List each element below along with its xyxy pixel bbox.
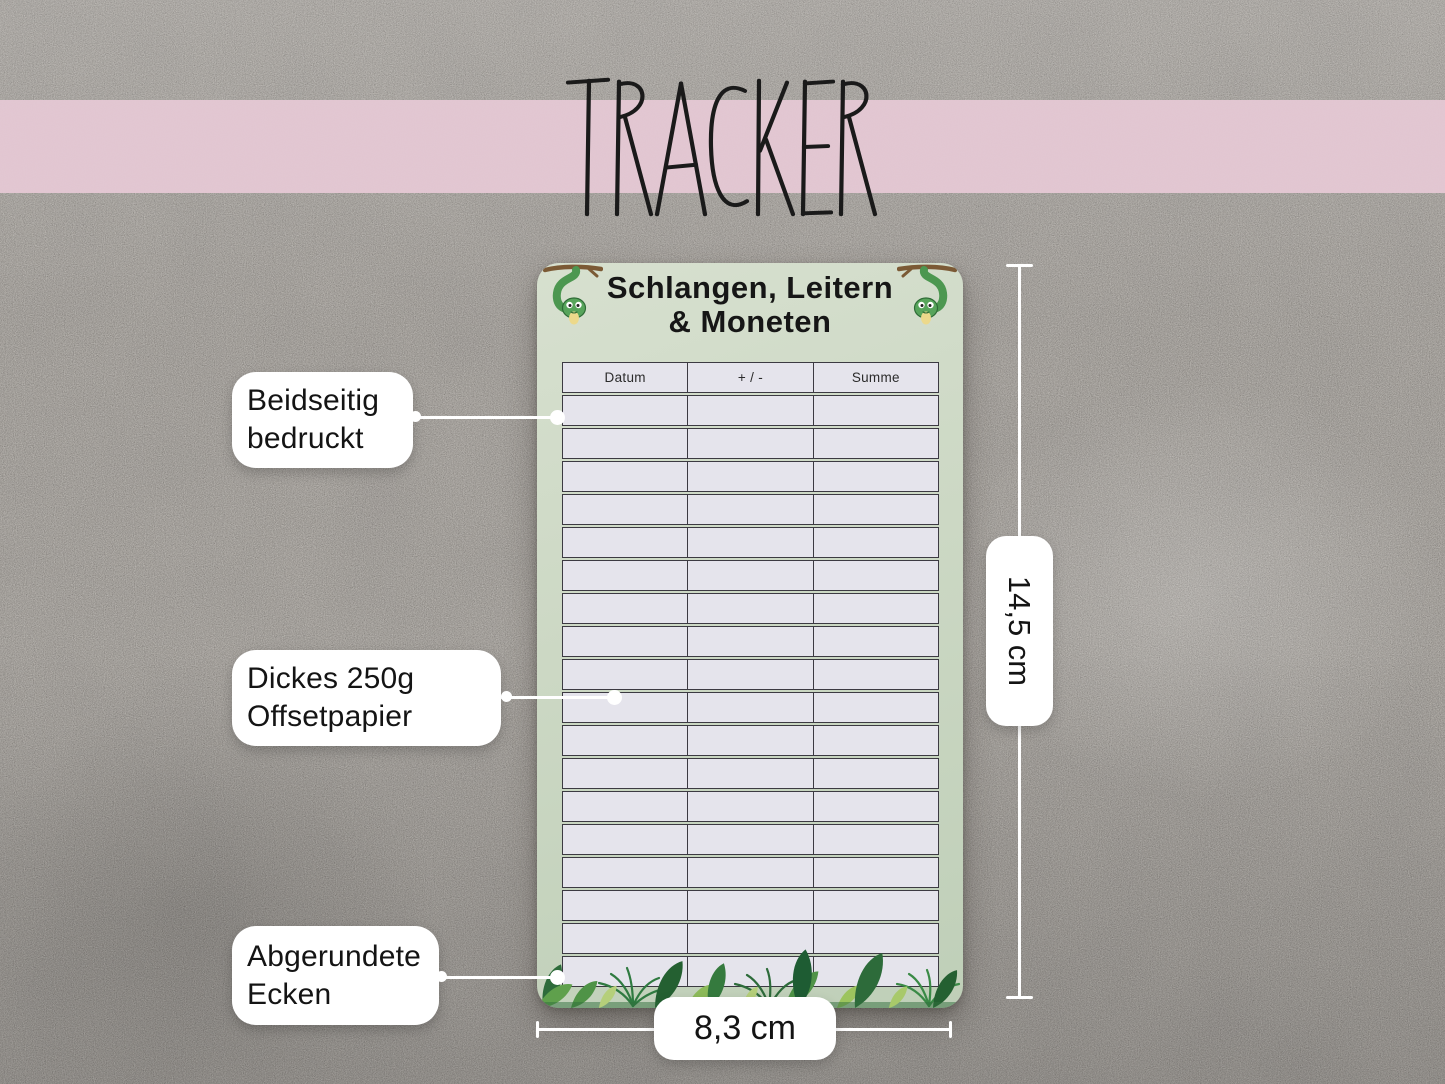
table-cell-empty xyxy=(813,825,938,854)
callout-connector-line xyxy=(412,416,558,419)
table-cell-empty xyxy=(813,759,938,788)
table-cell-empty xyxy=(687,528,812,557)
dimension-cap xyxy=(1006,264,1033,267)
table-cell-empty xyxy=(563,891,687,920)
table-cell-empty xyxy=(563,858,687,887)
table-cell-empty xyxy=(687,561,812,590)
table-cell-empty xyxy=(563,660,687,689)
table-cell-empty xyxy=(563,594,687,623)
table-row xyxy=(562,461,939,492)
connector-dot xyxy=(410,411,421,422)
table-cell-empty xyxy=(687,429,812,458)
connector-dot xyxy=(550,970,565,985)
table-row xyxy=(562,890,939,921)
table-row xyxy=(562,593,939,624)
width-dimension-label: 8,3 cm xyxy=(654,997,836,1060)
connector-dot xyxy=(550,410,565,425)
table-row xyxy=(562,395,939,426)
connector-dot xyxy=(436,971,447,982)
table-cell-empty xyxy=(687,693,812,722)
dimension-cap xyxy=(949,1021,952,1038)
table-row xyxy=(562,857,939,888)
table-cell-empty xyxy=(813,429,938,458)
tracker-table: Datum+ / -Summe xyxy=(562,362,939,989)
connector-dot xyxy=(501,691,512,702)
table-cell-empty xyxy=(813,594,938,623)
height-dimension-label: 14,5 cm xyxy=(986,536,1053,726)
dimension-cap xyxy=(1006,996,1033,999)
table-cell-empty xyxy=(687,858,812,887)
table-cell-empty xyxy=(563,462,687,491)
table-cell-empty xyxy=(563,825,687,854)
column-header-plus-minus: + / - xyxy=(687,363,812,392)
card-title-line1: Schlangen, Leitern xyxy=(537,271,963,305)
table-cell-empty xyxy=(563,528,687,557)
table-row xyxy=(562,824,939,855)
tracker-card: Schlangen, Leitern & Moneten Datum+ / -S… xyxy=(537,263,963,1008)
dimension-cap xyxy=(536,1021,539,1038)
table-row xyxy=(562,758,939,789)
card-title-line2: & Moneten xyxy=(537,305,963,339)
table-cell-empty xyxy=(687,825,812,854)
table-cell-empty xyxy=(813,462,938,491)
table-row xyxy=(562,494,939,525)
product-photo-tracker: Schlangen, Leitern & Moneten Datum+ / -S… xyxy=(0,0,1445,1084)
table-cell-empty xyxy=(687,660,812,689)
table-cell-empty xyxy=(563,429,687,458)
table-cell-empty xyxy=(813,495,938,524)
callout-connector-line xyxy=(499,696,615,699)
callout-double-sided-print: Beidseitig bedruckt xyxy=(232,372,413,468)
table-header-row: Datum+ / -Summe xyxy=(562,362,939,393)
table-row xyxy=(562,560,939,591)
column-header-datum: Datum xyxy=(563,363,687,392)
tracker-headline xyxy=(565,76,895,218)
height-dimension-value: 14,5 cm xyxy=(1002,576,1038,686)
table-cell-empty xyxy=(813,891,938,920)
table-row xyxy=(562,659,939,690)
table-cell-empty xyxy=(563,627,687,656)
table-row xyxy=(562,626,939,657)
table-cell-empty xyxy=(563,495,687,524)
table-cell-empty xyxy=(813,858,938,887)
table-cell-empty xyxy=(687,627,812,656)
table-cell-empty xyxy=(687,792,812,821)
table-row xyxy=(562,791,939,822)
callout-rounded-corners: Abgerundete Ecken xyxy=(232,926,439,1025)
table-cell-empty xyxy=(687,495,812,524)
table-cell-empty xyxy=(813,726,938,755)
callout-connector-line xyxy=(437,976,558,979)
width-dimension-value: 8,3 cm xyxy=(694,1009,796,1048)
table-cell-empty xyxy=(813,561,938,590)
table-cell-empty xyxy=(813,528,938,557)
table-row xyxy=(562,725,939,756)
table-cell-empty xyxy=(687,891,812,920)
connector-dot xyxy=(607,690,622,705)
table-cell-empty xyxy=(687,759,812,788)
table-cell-empty xyxy=(813,627,938,656)
card-title: Schlangen, Leitern & Moneten xyxy=(537,271,963,339)
table-cell-empty xyxy=(813,660,938,689)
table-cell-empty xyxy=(687,396,812,425)
table-cell-empty xyxy=(563,561,687,590)
callout-paper-weight: Dickes 250g Offsetpapier xyxy=(232,650,501,746)
table-cell-empty xyxy=(563,759,687,788)
column-header-summe: Summe xyxy=(813,363,938,392)
table-cell-empty xyxy=(813,792,938,821)
table-cell-empty xyxy=(687,726,812,755)
table-row xyxy=(562,428,939,459)
table-cell-empty xyxy=(813,396,938,425)
table-cell-empty xyxy=(687,462,812,491)
table-row xyxy=(562,527,939,558)
table-cell-empty xyxy=(563,396,687,425)
table-cell-empty xyxy=(563,726,687,755)
table-cell-empty xyxy=(563,792,687,821)
table-cell-empty xyxy=(687,594,812,623)
table-cell-empty xyxy=(813,693,938,722)
